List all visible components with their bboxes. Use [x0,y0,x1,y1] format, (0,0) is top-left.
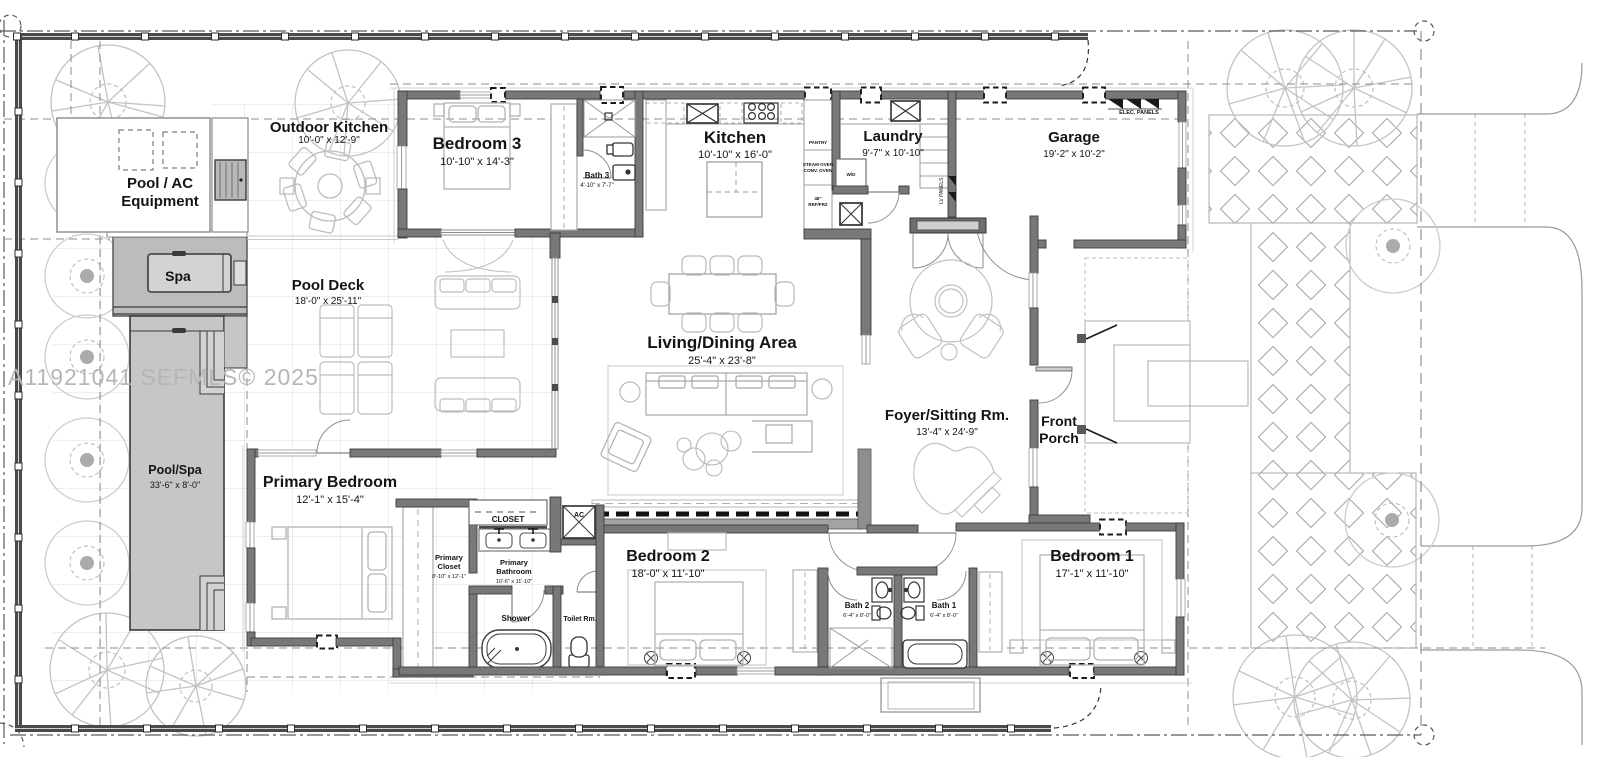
svg-text:10'-0" x 12'-9": 10'-0" x 12'-9" [298,135,360,146]
svg-text:13'-4" x 24'-9": 13'-4" x 24'-9" [916,427,978,438]
svg-text:10'-10" x 16'-0": 10'-10" x 16'-0" [698,149,772,161]
svg-text:Pool / AC: Pool / AC [127,175,193,192]
svg-text:9'-7" x 10'-10": 9'-7" x 10'-10" [862,148,924,159]
svg-text:Front: Front [1041,413,1077,429]
svg-text:Bedroom 3: Bedroom 3 [433,134,522,153]
svg-text:PANTRY: PANTRY [809,140,827,145]
svg-text:Garage: Garage [1048,129,1100,146]
svg-text:Primary: Primary [500,558,529,567]
svg-text:19'-2" x 10'-2": 19'-2" x 10'-2" [1043,149,1105,160]
svg-text:Bedroom 2: Bedroom 2 [626,548,710,565]
svg-text:AC: AC [574,512,584,519]
svg-text:Laundry: Laundry [863,128,923,145]
svg-text:33'-6" x 8'-0": 33'-6" x 8'-0" [150,480,200,490]
svg-text:STEAM OVEN: STEAM OVEN [803,162,834,167]
svg-text:CONV. OVEN: CONV. OVEN [804,168,833,173]
svg-text:Pool Deck: Pool Deck [292,277,365,294]
svg-text:Outdoor Kitchen: Outdoor Kitchen [270,119,388,136]
svg-text:4'-10" x 7'-7": 4'-10" x 7'-7" [580,183,614,189]
svg-text:10'-6" x 11'-10": 10'-6" x 11'-10" [496,579,533,585]
svg-text:10'-10" x 14'-3": 10'-10" x 14'-3" [440,156,514,168]
svg-text:Spa: Spa [165,268,191,284]
svg-text:Toilet Rm.: Toilet Rm. [563,616,596,623]
svg-text:Closet: Closet [438,562,461,571]
svg-text:LV PANELS: LV PANELS [939,177,945,204]
svg-text:Shower: Shower [502,614,531,623]
svg-text:A11921041 SEFMLS© 2025: A11921041 SEFMLS© 2025 [8,364,319,390]
svg-text:Pool/Spa: Pool/Spa [148,463,203,477]
svg-text:ELEC. PANELS: ELEC. PANELS [1119,110,1159,116]
svg-text:48": 48" [814,196,821,201]
svg-text:17'-1" x 11'-10": 17'-1" x 11'-10" [1056,568,1129,580]
svg-text:W/D: W/D [847,172,857,177]
svg-text:Bathroom: Bathroom [496,567,532,576]
svg-text:Primary Bedroom: Primary Bedroom [263,474,397,491]
svg-text:25'-4" x 23'-8": 25'-4" x 23'-8" [688,355,756,367]
svg-text:18'-0" x 11'-10": 18'-0" x 11'-10" [632,568,705,580]
svg-text:8'-10" x 12'-1": 8'-10" x 12'-1" [432,574,466,580]
svg-text:Primary: Primary [435,553,464,562]
svg-text:Porch: Porch [1039,430,1079,446]
svg-text:Bath 1: Bath 1 [932,601,957,610]
svg-text:Living/Dining Area: Living/Dining Area [647,333,797,352]
svg-text:Bedroom 1: Bedroom 1 [1050,548,1134,565]
svg-text:Bath 2: Bath 2 [845,601,870,610]
svg-text:6'-4" x 8'-0": 6'-4" x 8'-0" [930,613,958,619]
svg-text:6'-4" x 8'-0": 6'-4" x 8'-0" [843,613,871,619]
svg-text:Equipment: Equipment [121,193,199,210]
svg-text:Bath 3: Bath 3 [585,171,610,180]
svg-text:18'-0" x 25'-11": 18'-0" x 25'-11" [295,296,362,307]
svg-text:Kitchen: Kitchen [704,128,766,147]
svg-text:12'-1" x 15'-4": 12'-1" x 15'-4" [296,494,364,506]
svg-text:REF/FRZ: REF/FRZ [808,202,828,207]
svg-text:CLOSET: CLOSET [492,515,525,524]
svg-text:Foyer/Sitting Rm.: Foyer/Sitting Rm. [885,407,1009,424]
